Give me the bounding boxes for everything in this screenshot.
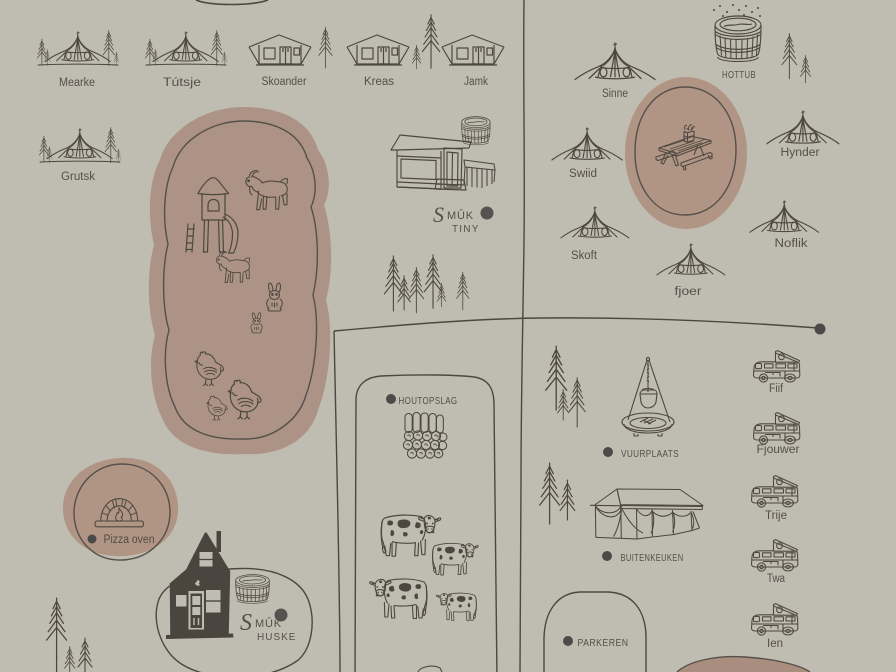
svg-text:Ien: Ien [767,638,783,650]
svg-text:HOUTOPSLAG: HOUTOPSLAG [399,395,458,407]
svg-text:Skoft: Skoft [571,250,598,262]
svg-text:Fiif: Fiif [769,383,784,395]
svg-text:S: S [240,610,252,636]
svg-text:Swiid: Swiid [569,168,597,180]
svg-text:Hynder: Hynder [781,147,820,159]
svg-text:Kreas: Kreas [364,76,394,88]
svg-text:S: S [433,202,444,227]
svg-text:HUSKE: HUSKE [257,632,296,643]
svg-text:Grutsk: Grutsk [61,171,95,183]
svg-text:Sinne: Sinne [602,88,628,100]
svg-text:Tútsje: Tútsje [163,77,201,89]
svg-text:Jamk: Jamk [464,76,488,88]
svg-text:Mearke: Mearke [59,77,95,89]
svg-text:Trije: Trije [765,510,787,522]
svg-text:fjoer: fjoer [675,286,702,298]
svg-text:HOTTUB: HOTTUB [722,69,756,81]
svg-text:MÛK: MÛK [447,209,474,222]
svg-text:Fjouwer: Fjouwer [757,444,800,456]
svg-text:BUITENKEUKEN: BUITENKEUKEN [621,552,684,564]
svg-text:Noflik: Noflik [775,238,808,250]
svg-text:TINY: TINY [452,224,480,235]
svg-text:Twa: Twa [767,573,786,585]
svg-text:VUURPLAATS: VUURPLAATS [621,448,679,460]
svg-text:Skoander: Skoander [262,76,307,88]
svg-text:PARKEREN: PARKEREN [578,637,629,649]
svg-text:Pizza oven: Pizza oven [104,534,155,546]
